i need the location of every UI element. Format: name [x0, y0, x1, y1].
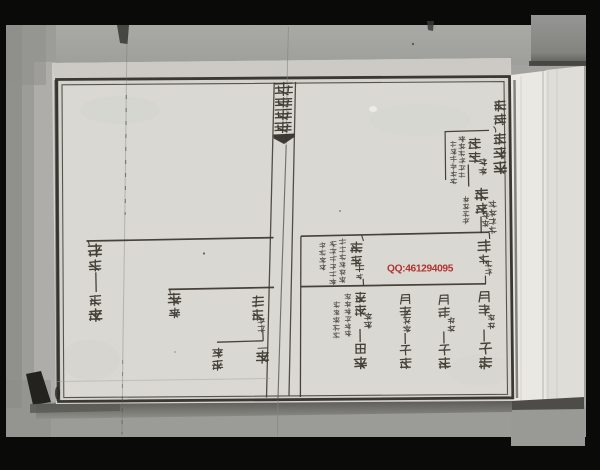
- svg-text:QQ:461294095: QQ:461294095: [387, 264, 454, 275]
